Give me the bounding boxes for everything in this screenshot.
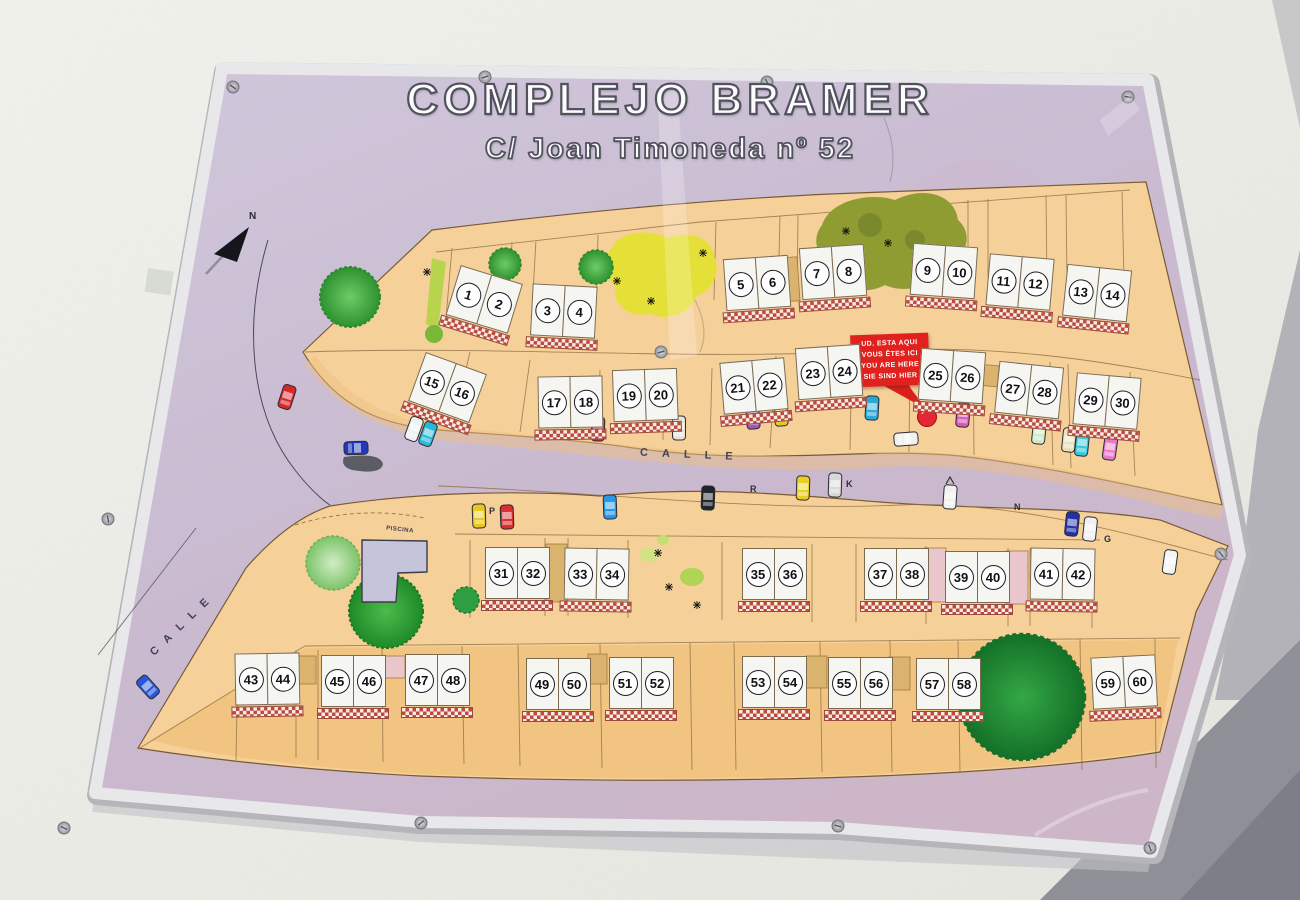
unit-number: 56 xyxy=(864,671,889,696)
unit-pair-17-18: 1718 xyxy=(533,375,606,440)
unit-house: 26 xyxy=(949,350,986,404)
unit-house: 50 xyxy=(558,658,591,710)
unit-pair-57-58: 5758 xyxy=(912,658,984,722)
unit-house: 42 xyxy=(1061,548,1095,601)
terrace-strip xyxy=(941,604,1013,615)
unit-house: 3 xyxy=(529,283,565,337)
unit-pair-13-14: 1314 xyxy=(1057,263,1135,334)
unit-pair-41-42: 4142 xyxy=(1025,547,1098,612)
unit-house: 5 xyxy=(722,257,759,311)
parking-letter-r: R xyxy=(750,484,757,494)
unit-number: 21 xyxy=(724,374,751,401)
unit-house: 24 xyxy=(826,344,863,398)
terrace-strip xyxy=(824,710,896,721)
unit-number: 16 xyxy=(446,377,478,409)
unit-pair-25-26: 2526 xyxy=(913,348,989,417)
unit-pair-47-48: 4748 xyxy=(401,654,473,718)
unit-house: 4 xyxy=(561,285,597,339)
unit-pair-5-6: 56 xyxy=(719,255,795,324)
unit-house: 22 xyxy=(751,357,788,412)
unit-number: 18 xyxy=(573,389,598,414)
unit-number: 6 xyxy=(759,269,786,296)
unit-number: 37 xyxy=(868,562,893,587)
unit-number: 20 xyxy=(648,382,674,408)
unit-pair-21-22: 2122 xyxy=(715,357,792,427)
unit-house: 44 xyxy=(266,652,300,705)
unit-house: 23 xyxy=(794,346,831,400)
unit-house: 33 xyxy=(563,547,597,600)
unit-pair-49-50: 4950 xyxy=(522,658,594,722)
unit-number: 38 xyxy=(900,562,925,587)
unit-number: 54 xyxy=(778,670,803,695)
unit-house: 52 xyxy=(641,657,674,709)
unit-pair-19-20: 1920 xyxy=(608,368,682,434)
unit-house: 30 xyxy=(1104,375,1141,430)
unit-house: 47 xyxy=(405,654,438,706)
unit-number: 57 xyxy=(920,672,945,697)
unit-pair-53-54: 5354 xyxy=(738,656,810,720)
unit-house: 38 xyxy=(896,548,929,600)
unit-number: 23 xyxy=(799,360,826,387)
unit-number: 45 xyxy=(325,669,350,694)
unit-house: 34 xyxy=(595,548,629,601)
unit-house: 46 xyxy=(353,655,386,707)
unit-house: 25 xyxy=(917,348,954,402)
unit-number: 43 xyxy=(238,667,263,692)
unit-house: 54 xyxy=(774,656,807,708)
unit-house: 10 xyxy=(941,245,978,299)
unit-house: 41 xyxy=(1029,547,1063,600)
unit-number: 4 xyxy=(566,299,592,325)
unit-number: 29 xyxy=(1077,386,1104,413)
unit-number: 42 xyxy=(1065,562,1090,587)
unit-house: 28 xyxy=(1025,364,1063,419)
parking-letter-p: P xyxy=(489,506,495,516)
unit-number: 10 xyxy=(946,259,973,286)
unit-number: 8 xyxy=(835,258,862,285)
unit-number: 52 xyxy=(645,671,670,696)
parking-letter-g: G xyxy=(1104,534,1111,544)
unit-house: 40 xyxy=(977,551,1010,603)
unit-number: 50 xyxy=(562,672,587,697)
tree xyxy=(320,267,380,327)
unit-number: 49 xyxy=(530,672,555,697)
terrace-strip xyxy=(522,711,594,722)
terrace-strip xyxy=(912,711,984,722)
unit-pair-59-60: 5960 xyxy=(1086,654,1161,722)
unit-pair-43-44: 4344 xyxy=(230,652,303,717)
unit-number: 31 xyxy=(489,561,514,586)
unit-number: 11 xyxy=(990,267,1017,294)
unit-pair-39-40: 3940 xyxy=(941,551,1013,615)
unit-number: 19 xyxy=(616,383,642,409)
sign-title: COMPLEJO BRAMER xyxy=(280,78,1060,122)
unit-house: 58 xyxy=(948,658,981,710)
unit-house: 20 xyxy=(643,368,678,421)
parking-letter-n: N xyxy=(1014,502,1021,512)
unit-number: 41 xyxy=(1033,561,1058,586)
unit-number: 59 xyxy=(1095,670,1121,696)
unit-house: 6 xyxy=(754,255,791,309)
unit-number: 58 xyxy=(952,672,977,697)
unit-number: 3 xyxy=(534,297,560,323)
tree xyxy=(306,536,360,590)
unit-house: 14 xyxy=(1093,267,1131,322)
unit-number: 5 xyxy=(727,271,754,298)
tree xyxy=(579,250,613,284)
unit-house: 45 xyxy=(321,655,354,707)
unit-pair-29-30: 2930 xyxy=(1067,372,1144,442)
unit-number: 2 xyxy=(483,288,514,319)
terrace-strip xyxy=(317,708,389,719)
unit-number: 1 xyxy=(453,279,484,310)
terrace-strip xyxy=(860,601,932,612)
unit-house: 32 xyxy=(517,547,550,599)
unit-house: 37 xyxy=(864,548,897,600)
unit-pair-3-4: 34 xyxy=(525,283,600,351)
unit-house: 17 xyxy=(537,376,571,429)
unit-house: 36 xyxy=(774,548,807,600)
unit-number: 44 xyxy=(270,666,295,691)
unit-pair-33-34: 3334 xyxy=(559,547,632,612)
unit-number: 9 xyxy=(914,257,941,284)
unit-house: 18 xyxy=(569,375,603,428)
unit-pair-31-32: 3132 xyxy=(481,547,553,611)
unit-house: 51 xyxy=(609,657,642,709)
unit-number: 28 xyxy=(1031,378,1058,405)
unit-number: 35 xyxy=(746,562,771,587)
terrace-strip xyxy=(401,707,473,718)
unit-number: 46 xyxy=(357,669,382,694)
terrace-strip xyxy=(1025,600,1097,612)
unit-number: 60 xyxy=(1127,668,1153,694)
unit-house: 39 xyxy=(945,551,978,603)
unit-pair-27-28: 2728 xyxy=(989,360,1067,431)
unit-number: 7 xyxy=(803,260,830,287)
unit-house: 56 xyxy=(860,657,893,709)
tree xyxy=(453,587,479,613)
unit-number: 40 xyxy=(981,565,1006,590)
unit-house: 43 xyxy=(234,653,268,706)
unit-number: 34 xyxy=(599,562,624,587)
unit-house: 19 xyxy=(611,369,646,422)
unit-house: 12 xyxy=(1017,256,1054,311)
unit-house: 53 xyxy=(742,656,775,708)
unit-house: 60 xyxy=(1122,654,1158,708)
unit-pair-51-52: 5152 xyxy=(605,657,677,721)
unit-number: 39 xyxy=(949,565,974,590)
unit-house: 57 xyxy=(916,658,949,710)
unit-house: 8 xyxy=(830,244,867,298)
unit-number: 26 xyxy=(954,364,981,391)
terrace-strip xyxy=(231,705,303,717)
unit-house: 55 xyxy=(828,657,861,709)
unit-pair-45-46: 4546 xyxy=(317,655,389,719)
unit-number: 53 xyxy=(746,670,771,695)
north-label: N xyxy=(249,211,256,222)
unit-number: 30 xyxy=(1109,389,1136,416)
unit-number: 47 xyxy=(409,668,434,693)
sign-photo: COMPLEJO BRAMER C/ Joan Timoneda nº 52 U… xyxy=(0,0,1300,900)
unit-number: 55 xyxy=(832,671,857,696)
terrace-strip xyxy=(559,600,631,612)
unit-number: 36 xyxy=(778,562,803,587)
terrace-strip xyxy=(534,428,606,440)
unit-pair-35-36: 3536 xyxy=(738,548,810,612)
unit-house: 31 xyxy=(485,547,518,599)
unit-house: 49 xyxy=(526,658,559,710)
unit-house: 35 xyxy=(742,548,775,600)
sign-subtitle: C/ Joan Timoneda nº 52 xyxy=(340,133,1000,166)
unit-number: 27 xyxy=(999,375,1026,402)
unit-pair-11-12: 1112 xyxy=(980,253,1057,323)
unit-pair-37-38: 3738 xyxy=(860,548,932,612)
parking-letter-k: K xyxy=(846,479,853,489)
unit-number: 17 xyxy=(541,390,566,415)
unit-number: 25 xyxy=(922,362,949,389)
unit-house: 48 xyxy=(437,654,470,706)
terrace-strip xyxy=(481,600,553,611)
terrace-strip xyxy=(605,710,677,721)
unit-pair-23-24: 2324 xyxy=(791,344,867,413)
terrace-strip xyxy=(738,709,810,720)
terrace-strip xyxy=(738,601,810,612)
unit-pair-9-10: 910 xyxy=(905,243,981,312)
unit-number: 48 xyxy=(441,668,466,693)
unit-number: 32 xyxy=(521,561,546,586)
unit-number: 13 xyxy=(1067,278,1094,305)
unit-house: 59 xyxy=(1090,656,1126,710)
unit-house: 7 xyxy=(798,246,835,300)
unit-house: 9 xyxy=(909,243,946,297)
unit-number: 22 xyxy=(756,371,783,398)
unit-number: 51 xyxy=(613,671,638,696)
unit-pair-7-8: 78 xyxy=(795,244,871,313)
unit-number: 24 xyxy=(831,358,858,385)
unit-number: 12 xyxy=(1022,270,1049,297)
unit-number: 33 xyxy=(567,561,592,586)
unit-pair-55-56: 5556 xyxy=(824,657,896,721)
unit-number: 14 xyxy=(1099,281,1126,308)
